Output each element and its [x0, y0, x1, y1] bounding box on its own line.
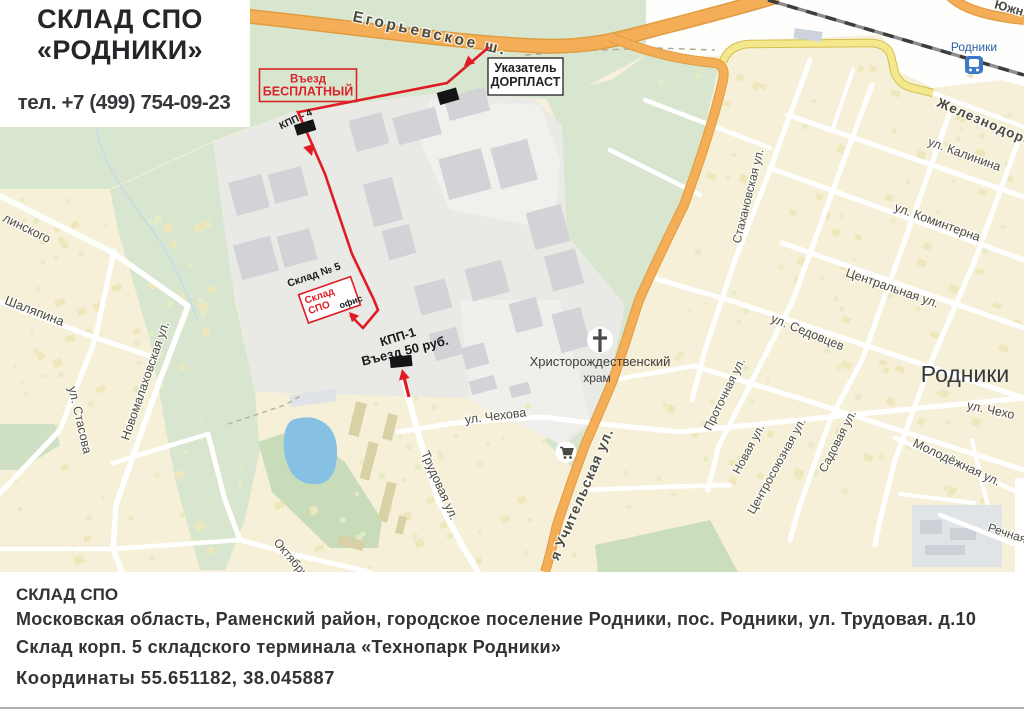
svg-text:Указатель: Указатель [494, 61, 557, 75]
svg-text:БЕСПЛАТНЫЙ: БЕСПЛАТНЫЙ [263, 84, 353, 99]
svg-text:храм: храм [583, 371, 611, 385]
svg-text:Родники: Родники [921, 361, 1010, 387]
svg-text:Христорождественский: Христорождественский [530, 354, 671, 369]
svg-text:ДОРПЛАСТ: ДОРПЛАСТ [491, 75, 561, 89]
svg-text:Родники: Родники [951, 40, 997, 54]
